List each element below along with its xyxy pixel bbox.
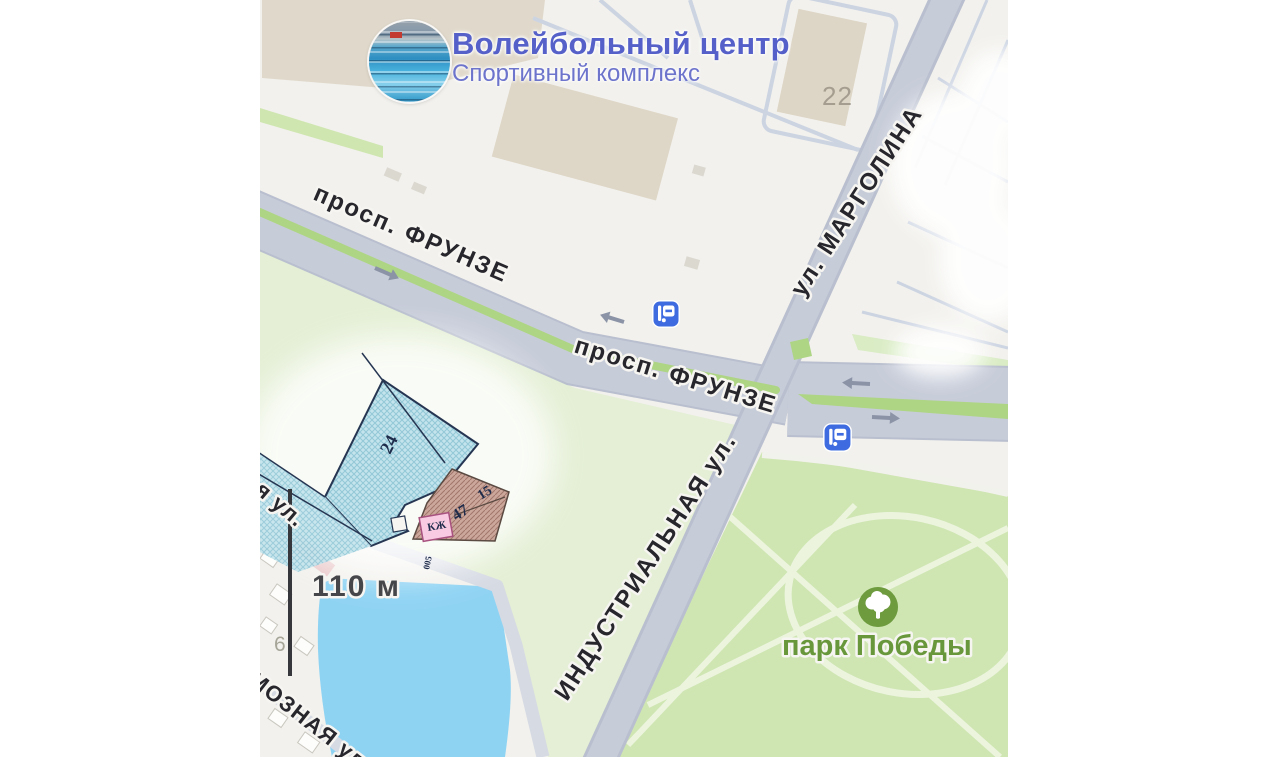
- house-number-6: 6: [274, 633, 286, 656]
- poi-subtitle: Спортивный комплекс: [452, 60, 700, 88]
- bus-stop-icon-2[interactable]: [824, 424, 851, 451]
- bus-stop-icon-1[interactable]: [653, 301, 679, 327]
- map-screenshot: 24 15 47 КЖ 005 110 м просп. ФРУНЗЕ прос…: [0, 0, 1280, 757]
- cadastral-notch: [391, 516, 407, 532]
- left-margin: [0, 0, 260, 757]
- poi-avatar[interactable]: [369, 21, 450, 102]
- poi-title[interactable]: Волейбольный центр: [452, 26, 790, 62]
- house-number-22: 22: [822, 81, 853, 111]
- park-label: парк Победы: [782, 630, 972, 662]
- map-canvas[interactable]: 24 15 47 КЖ 005 110 м просп. ФРУНЗЕ прос…: [0, 0, 1280, 757]
- right-margin: [1008, 0, 1280, 757]
- scale-label: 110 м: [312, 570, 401, 603]
- pond: [318, 579, 511, 757]
- tree-icon: [858, 587, 898, 627]
